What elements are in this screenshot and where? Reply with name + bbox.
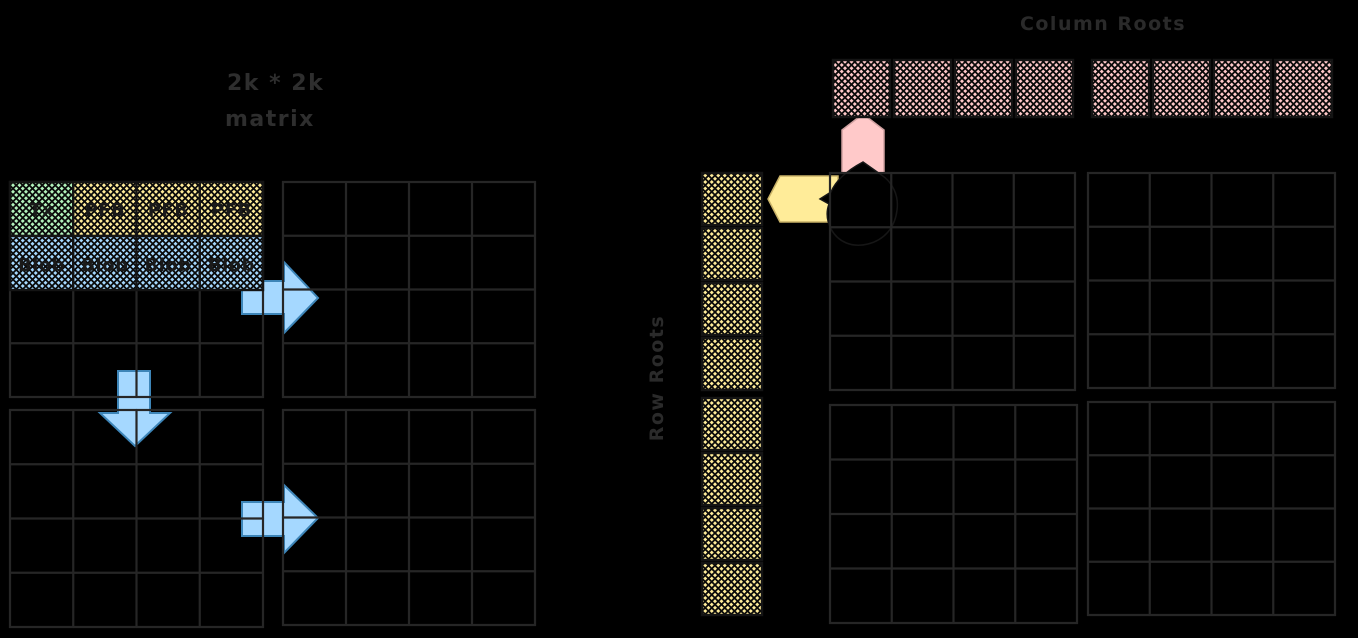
- row-roots-label: Row Roots: [646, 315, 668, 441]
- matrix-header-row: Tx PFB PFB PFB: [10, 182, 263, 236]
- matrix-title-line1: 2k * 2k: [227, 71, 324, 96]
- header-cell-pfb-1-label: PFB: [85, 200, 126, 221]
- header-cell-tx-label: Tx: [29, 200, 54, 221]
- header-cell-tx: Tx: [10, 182, 73, 236]
- row-roots-cell-4: [702, 338, 762, 390]
- column-roots-cell-5: [1092, 60, 1149, 117]
- blob-cell-4-label: Blob: [208, 255, 255, 276]
- row-roots-cell-2: [702, 228, 762, 280]
- header-cell-pfb-2-label: PFB: [148, 200, 189, 221]
- column-roots-cell-8: [1275, 60, 1332, 117]
- row-roots-cell-5: [702, 398, 762, 450]
- header-cell-pfb-3-label: PFB: [211, 200, 252, 221]
- column-roots-label: Column Roots: [1020, 13, 1186, 35]
- row-roots-cell-6: [702, 453, 762, 505]
- matrix-title-line2: matrix: [225, 107, 315, 132]
- column-roots-cell-1: [833, 60, 890, 117]
- header-cell-pfb-1: PFB: [73, 182, 136, 236]
- matrix-blob-row: Blob Blob Blob Blob: [10, 236, 263, 290]
- blob-cell-3-label: Blob: [145, 255, 192, 276]
- column-roots-cell-4: [1016, 60, 1073, 117]
- blob-cell-3: Blob: [137, 236, 200, 290]
- header-cell-pfb-3: PFB: [200, 182, 263, 236]
- column-roots-cell-7: [1214, 60, 1271, 117]
- column-roots-cell-3: [955, 60, 1012, 117]
- blob-cell-2-label: Blob: [81, 255, 128, 276]
- header-cell-pfb-2: PFB: [137, 182, 200, 236]
- blob-cell-1: Blob: [10, 236, 73, 290]
- column-roots-cell-6: [1153, 60, 1210, 117]
- row-roots-cell-7: [702, 508, 762, 560]
- blob-cell-2: Blob: [73, 236, 136, 290]
- row-roots-cell-8: [702, 563, 762, 615]
- blob-cell-1-label: Blob: [18, 255, 65, 276]
- row-roots-cell-1: [702, 173, 762, 225]
- row-roots-cell-3: [702, 283, 762, 335]
- column-roots-cell-2: [894, 60, 951, 117]
- blob-cell-4: Blob: [200, 236, 263, 290]
- diagram-canvas: Tx PFB PFB PFB Blob Blob: [0, 0, 1358, 638]
